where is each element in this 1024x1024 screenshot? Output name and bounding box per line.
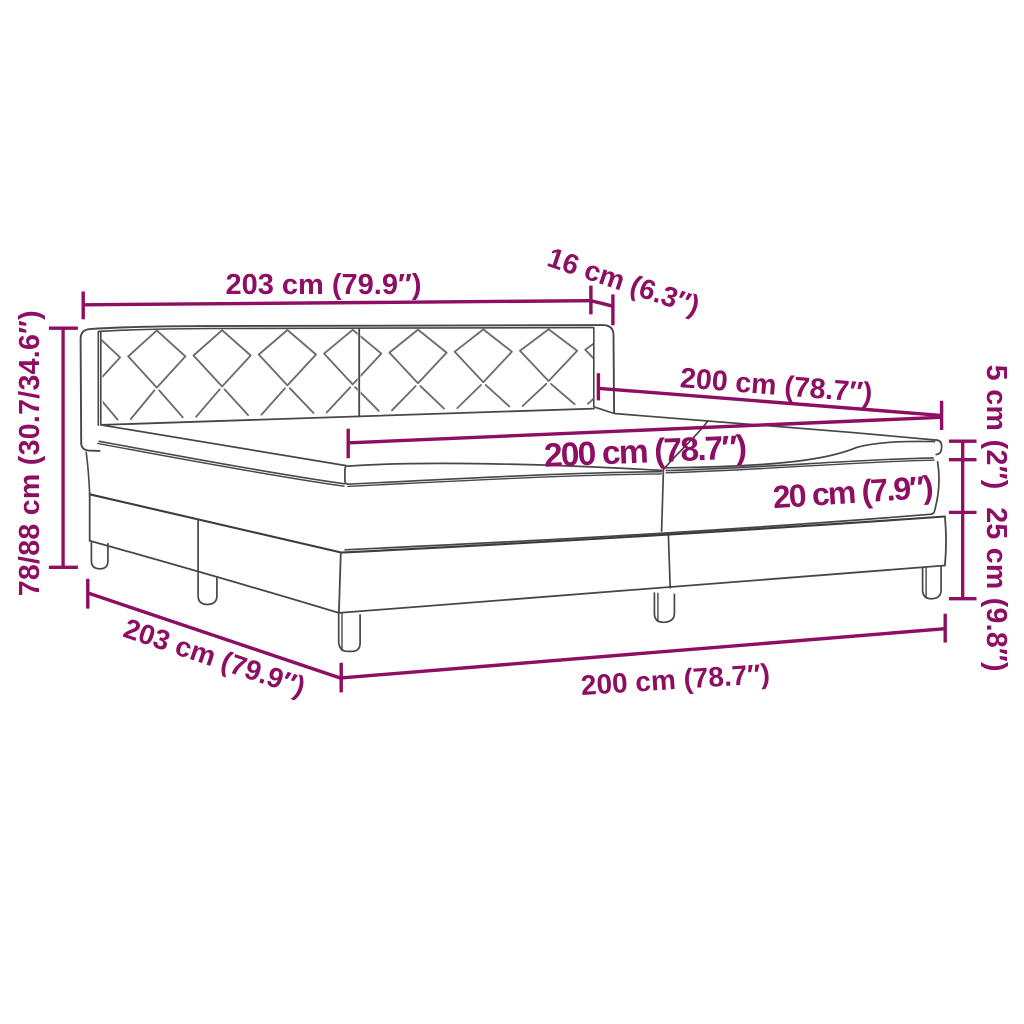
svg-text:5 cm (2″): 5 cm (2″): [980, 365, 1012, 490]
svg-text:20 cm (7.9″): 20 cm (7.9″): [772, 469, 934, 516]
svg-text:78/88 cm (30.7/34.6″): 78/88 cm (30.7/34.6″): [14, 310, 46, 596]
svg-text:203 cm (79.9″): 203 cm (79.9″): [225, 269, 421, 301]
svg-text:16 cm (6.3″): 16 cm (6.3″): [544, 242, 704, 322]
svg-text:25 cm (9.8″): 25 cm (9.8″): [980, 507, 1012, 672]
svg-text:200 cm (78.7″): 200 cm (78.7″): [580, 658, 771, 701]
